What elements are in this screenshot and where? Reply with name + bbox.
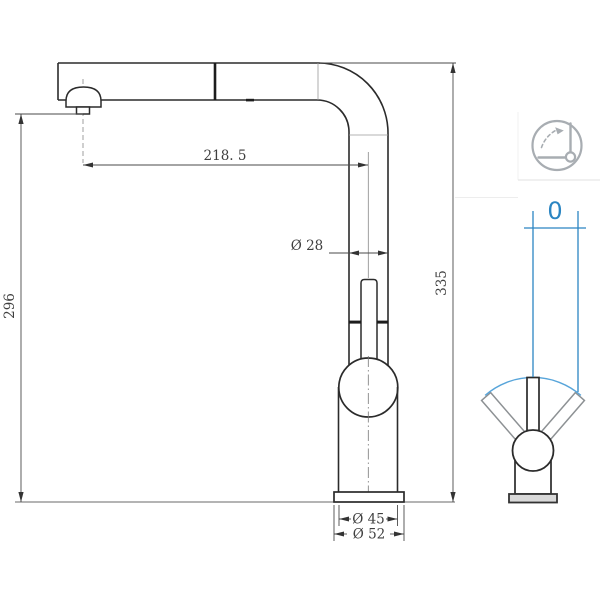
dimension-spout-reach: 218. 5 bbox=[83, 148, 368, 168]
swivel-center-pipe bbox=[527, 378, 539, 431]
swivel-zero-label: 0 bbox=[547, 197, 562, 225]
base-plate bbox=[334, 492, 404, 502]
spout-button-detail bbox=[246, 99, 254, 102]
dimension-body-diameter: Ø 45 bbox=[339, 505, 398, 528]
icon-arc-arrowhead bbox=[555, 127, 564, 134]
swivel-range-view: 0 bbox=[482, 197, 586, 503]
collar-mark-right bbox=[377, 321, 388, 324]
faucet-side-view bbox=[15, 63, 455, 502]
dim-label-218-5: 218. 5 bbox=[204, 148, 247, 164]
swivel-base-plate bbox=[509, 494, 557, 503]
tile-dividers bbox=[455, 112, 600, 198]
swivel-ball-joint bbox=[513, 430, 554, 471]
swivel-zero-dimension bbox=[524, 211, 586, 392]
icon-rotation-arc bbox=[542, 130, 557, 148]
rotation-angle-icon bbox=[533, 121, 582, 170]
spray-head bbox=[66, 87, 101, 107]
dimension-spout-height: 296 bbox=[2, 114, 83, 502]
dimension-pipe-diameter: Ø 28 bbox=[291, 238, 388, 256]
dim-label-296: 296 bbox=[2, 293, 18, 319]
dim-label-d28: Ø 28 bbox=[291, 238, 324, 254]
spout-inner-outline bbox=[58, 100, 349, 372]
icon-pivot-circle bbox=[566, 152, 575, 161]
nozzle-tip bbox=[77, 107, 90, 114]
dim-label-335: 335 bbox=[434, 270, 450, 296]
dim-label-d45: Ø 45 bbox=[352, 512, 385, 528]
collar-mark-left bbox=[349, 321, 361, 324]
dim-label-d52: Ø 52 bbox=[353, 527, 386, 543]
lever-handle bbox=[361, 280, 377, 366]
technical-drawing-page: 218. 5 296 335 Ø 28 Ø 45 Ø 52 bbox=[0, 0, 600, 600]
faucet-drawing-canvas: 218. 5 296 335 Ø 28 Ø 45 Ø 52 bbox=[0, 0, 600, 600]
